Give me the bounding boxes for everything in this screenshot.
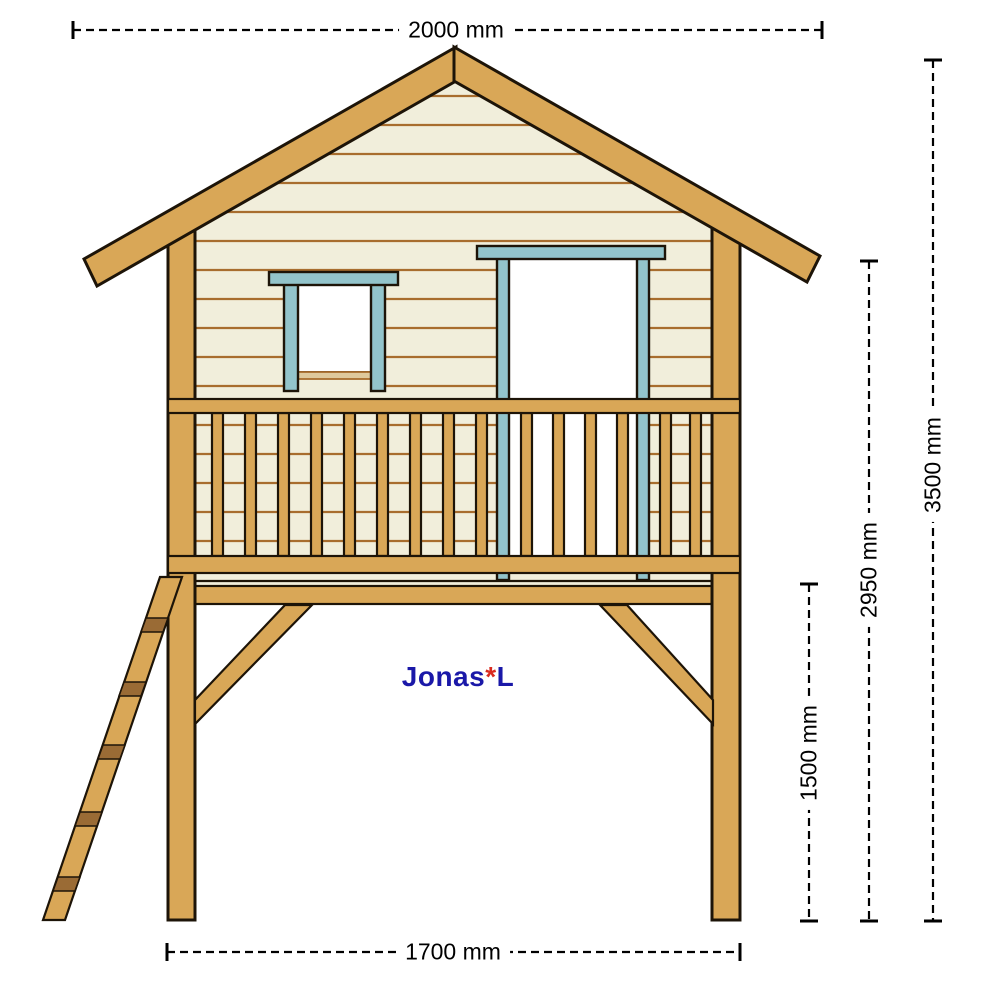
dim-label-bottom-width: 1700 mm [396, 938, 510, 967]
dim-label-stilt-height: 1500 mm [795, 696, 824, 810]
playhouse-technical-drawing: 2000 mm 1700 mm 1500 mm 2950 mm 3500 mm … [0, 0, 1000, 1000]
railing-top-rail [168, 399, 740, 413]
left-window-jamb-left [284, 284, 298, 391]
door-jamb-left [497, 258, 509, 580]
right-brace [600, 605, 713, 724]
dim-label-top-width: 2000 mm [399, 16, 513, 45]
railing-bottom-rail [168, 556, 740, 573]
left-window-header [269, 272, 398, 285]
platform [195, 573, 713, 604]
dim-label-upper-height: 2950 mm [855, 513, 884, 627]
left-window-jamb-right [371, 284, 385, 391]
brand-name: Jonas [402, 661, 485, 692]
left-window [269, 272, 398, 391]
brand-logo: Jonas*L [402, 661, 514, 693]
brand-star: * [485, 661, 496, 692]
brand-letter: L [497, 661, 515, 692]
left-brace [195, 605, 312, 724]
house-drawing [0, 0, 1000, 1000]
left-window-glass [298, 285, 371, 372]
left-window-sill [298, 372, 371, 379]
dim-label-total-height: 3500 mm [919, 408, 948, 522]
door-header [477, 246, 665, 259]
platform-floor-band [195, 586, 713, 604]
ladder [43, 577, 182, 920]
door-jamb-right [637, 258, 649, 580]
